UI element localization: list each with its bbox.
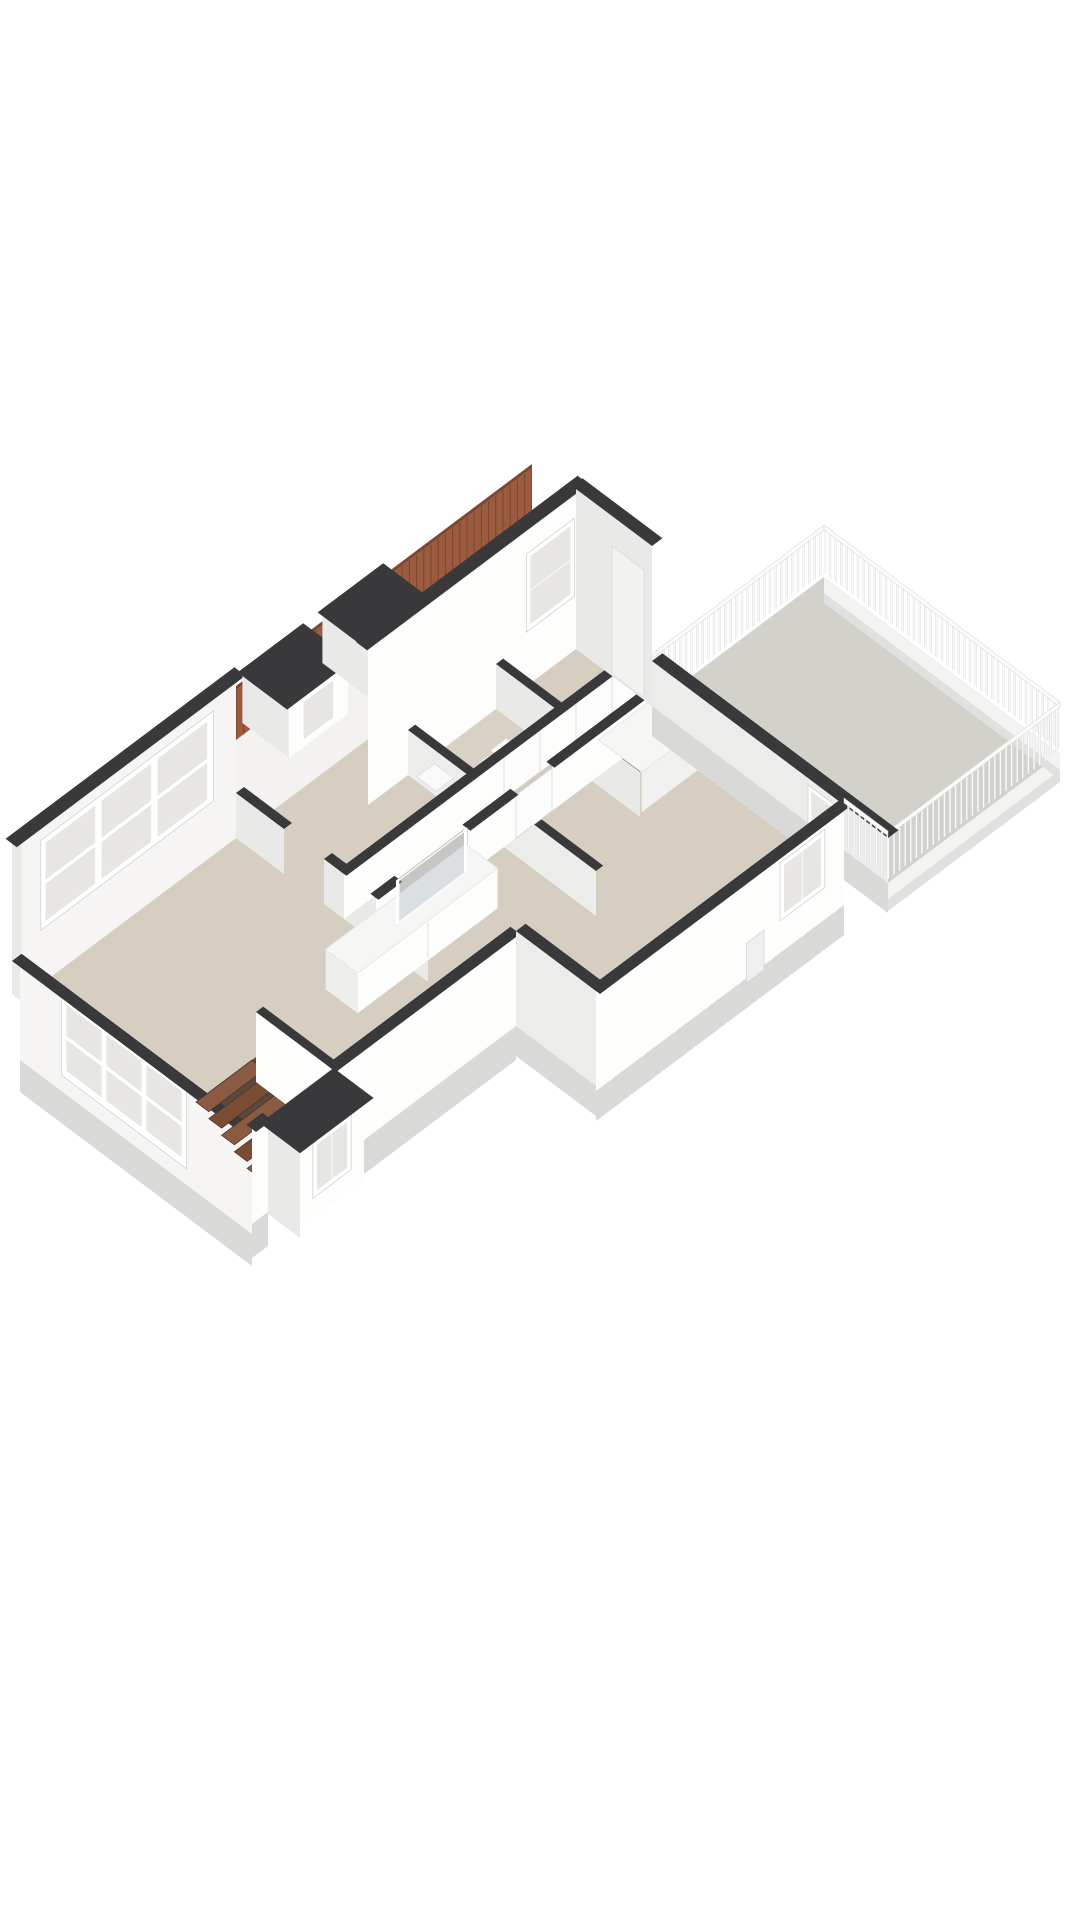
floorplan-canvas bbox=[0, 0, 1080, 1920]
terrace-door bbox=[612, 546, 644, 698]
floorplan-3d-render bbox=[0, 0, 1080, 1920]
sw-facade-face1 bbox=[252, 1117, 268, 1224]
glass-post-2 bbox=[464, 827, 467, 873]
glass-post-1 bbox=[396, 878, 399, 924]
